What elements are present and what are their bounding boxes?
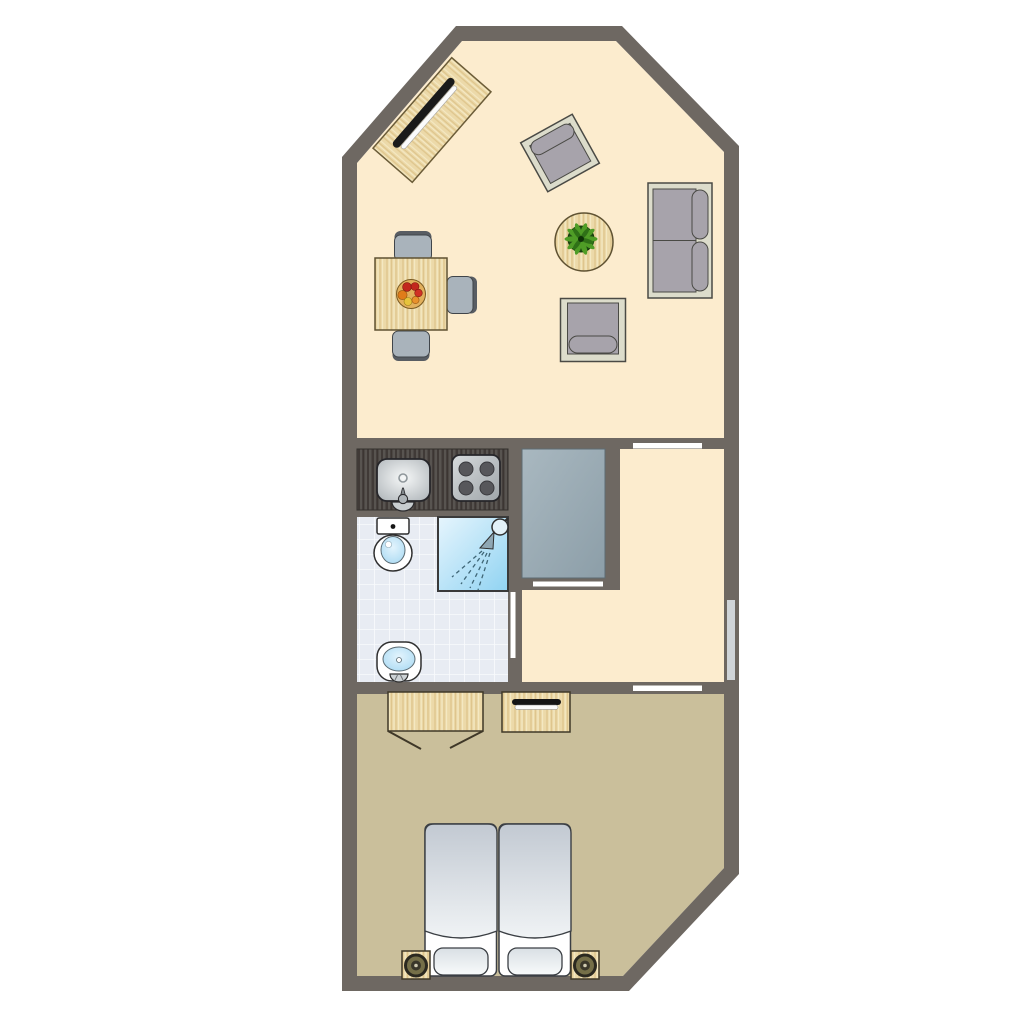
built-in-closet (522, 449, 605, 578)
nightstand-with-lamp-left (402, 951, 430, 979)
dining-chair-bottom (393, 331, 430, 361)
two-seat-sofa (648, 183, 712, 298)
nightstand-with-lamp-right (571, 951, 599, 979)
door-living-to-hallway (633, 443, 702, 449)
single-bed-left (425, 824, 497, 976)
toilet (374, 518, 412, 571)
single-bed-right (499, 824, 571, 976)
window-right-wall (727, 600, 735, 680)
kitchen-stove (452, 455, 500, 501)
shower (438, 517, 508, 591)
dining-chair-top (395, 231, 432, 261)
dresser-with-tv (502, 692, 570, 732)
armchair (561, 299, 626, 362)
floor-plan (0, 0, 1024, 1024)
round-table-with-plant (555, 213, 613, 271)
door-hallway-to-bathroom (511, 592, 516, 658)
dining-table-with-fruit-bowl (375, 258, 447, 330)
door-hallway-to-bedroom (633, 686, 702, 692)
closet-sliding-door (533, 582, 603, 587)
floor-plan-page (0, 0, 1024, 1024)
dining-chair-right (447, 277, 477, 314)
wall-bathroom-top (357, 510, 508, 517)
wall-closet-right (605, 449, 620, 590)
kitchen (357, 449, 508, 511)
washbasin (377, 642, 421, 682)
fruit-bowl (397, 280, 426, 309)
